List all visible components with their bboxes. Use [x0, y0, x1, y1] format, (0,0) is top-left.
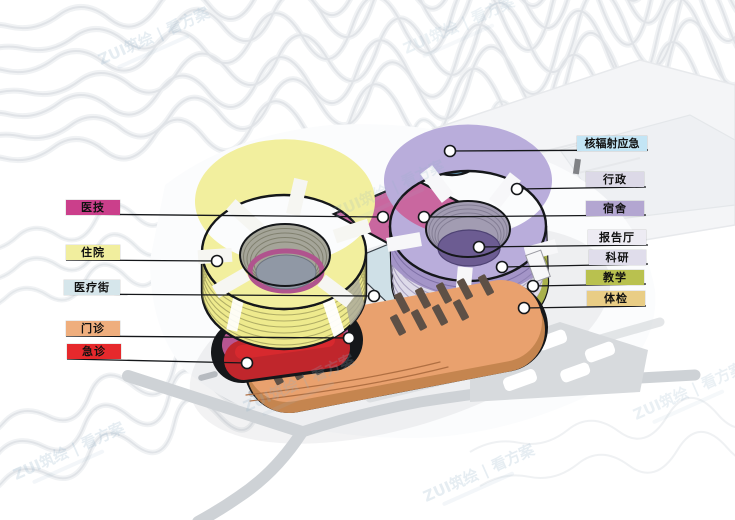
legend-chip-inpatient: 住院 — [66, 245, 120, 260]
legend-chip-dormitory: 宿舍 — [586, 201, 644, 216]
diagram-canvas: 医技 住院 医疗街 门诊 急诊 核辐射应急 行政 宿舍 报告厅 科研 教学 体检… — [0, 0, 735, 520]
legend-chip-medical-tech: 医技 — [66, 200, 120, 215]
legend-chip-lecture-hall: 报告厅 — [588, 230, 646, 245]
legend-chip-teaching: 教学 — [586, 270, 644, 285]
lecture-hall-disc — [438, 230, 500, 266]
legend-chip-medical-street: 医疗街 — [64, 280, 120, 295]
legend-chip-research: 科研 — [589, 250, 646, 265]
legend-chip-nuclear: 核辐射应急 — [577, 136, 647, 151]
legend-chip-emergency: 急诊 — [67, 344, 121, 359]
legend-chip-outpatient: 门诊 — [66, 321, 120, 336]
legend-chip-physical-exam: 体检 — [587, 291, 645, 306]
legend-chip-administration: 行政 — [586, 172, 644, 187]
